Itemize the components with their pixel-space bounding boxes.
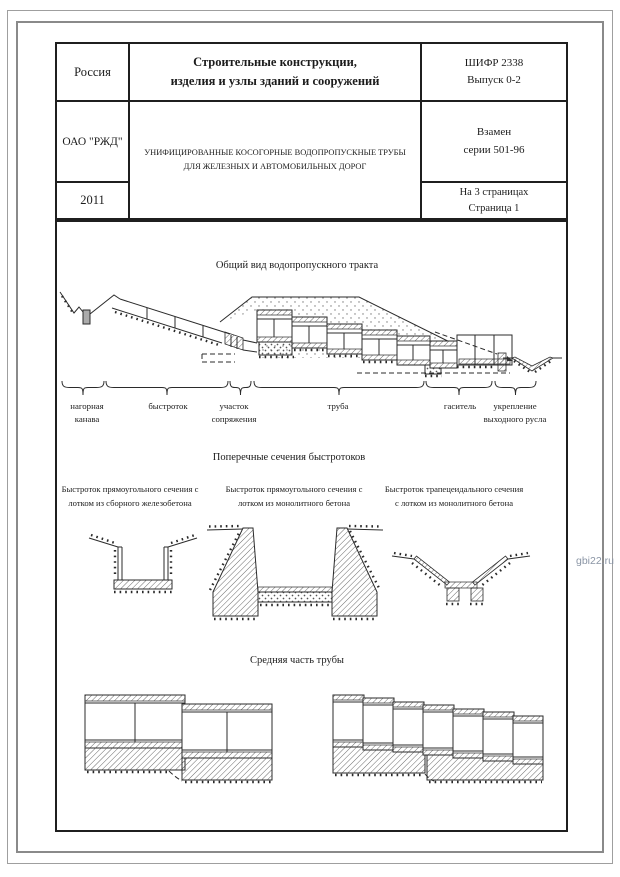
- cross-sections-title: Поперечные сечения быстротоков: [213, 452, 365, 463]
- series-title-cell: Строительные конструкции, изделия и узлы…: [130, 44, 420, 100]
- pipe-middle-long-sections: [85, 695, 272, 782]
- chute-channel: [112, 299, 257, 362]
- organization-cell: ОАО "РЖД": [57, 102, 128, 181]
- organization-label: ОАО "РЖД": [62, 136, 122, 148]
- country-cell: Россия: [57, 44, 128, 100]
- cross-section-caption-2: Быстроток прямоугольного сечения с лотко…: [223, 483, 365, 511]
- pipe-middle-title: Средняя часть трубы: [250, 655, 344, 666]
- series-title-line1: Строительные конструкции,: [193, 53, 357, 72]
- section-rectangular-monolithic: [207, 526, 383, 619]
- pages-cell: На 3 страницах Страница 1: [422, 183, 566, 218]
- section-trapezoidal: [392, 553, 530, 604]
- title-block-table: Россия Строительные конструкции, изделия…: [55, 42, 568, 220]
- general-view-drawing: [57, 280, 570, 382]
- cross-section-caption-3: Быстроток трапецеидального сечения с лот…: [383, 483, 525, 511]
- code-cell: ШИФР 2338 Выпуск 0-2: [422, 44, 566, 100]
- zone-label-outlet: укрепление выходного русла: [478, 400, 552, 426]
- cross-sections-drawing: [57, 522, 567, 642]
- pages-count: На 3 страницах: [460, 185, 529, 201]
- zone-braces: [57, 378, 570, 400]
- code-number: ШИФР 2338: [465, 55, 524, 72]
- zone-label-chute: быстроток: [128, 400, 208, 413]
- document-page: Россия Строительные конструкции, изделия…: [0, 0, 620, 877]
- issue-number: Выпуск 0-2: [467, 72, 521, 89]
- general-view-title: Общий вид водопропускного тракта: [216, 260, 378, 271]
- zone-label-pipe: труба: [308, 400, 368, 413]
- replaces-line1: Взамен: [477, 124, 511, 141]
- page-number: Страница 1: [469, 201, 520, 217]
- document-title: УНИФИЦИРОВАННЫЕ КОСОГОРНЫЕ ВОДОПРОПУСКНЫ…: [140, 146, 410, 175]
- pipe-middle-drawing: [57, 690, 567, 808]
- watermark: gbi22.ru: [576, 555, 614, 567]
- year-label: 2011: [80, 193, 105, 208]
- drawing-sheet-area: Общий вид водопропускного тракта: [55, 220, 568, 832]
- document-title-cell: УНИФИЦИРОВАННЫЕ КОСОГОРНЫЕ ВОДОПРОПУСКНЫ…: [130, 102, 420, 218]
- zone-label-ditch: нагорная канава: [58, 400, 116, 426]
- year-cell: 2011: [57, 183, 128, 218]
- series-title-line2: изделия и узлы зданий и сооружений: [171, 72, 380, 91]
- pipe-middle-short-sections: [333, 695, 543, 782]
- country-label: Россия: [74, 65, 111, 80]
- underbraces: [62, 381, 536, 395]
- zone-label-transition: участок сопряжения: [204, 400, 264, 426]
- section-rectangular-precast: [89, 535, 197, 592]
- replaces-line2: серии 501-96: [463, 142, 524, 159]
- replaces-cell: Взамен серии 501-96: [422, 102, 566, 181]
- cross-section-caption-1: Быстроток прямоугольного сечения с лотко…: [59, 483, 201, 511]
- upstream-ditch: [60, 292, 120, 324]
